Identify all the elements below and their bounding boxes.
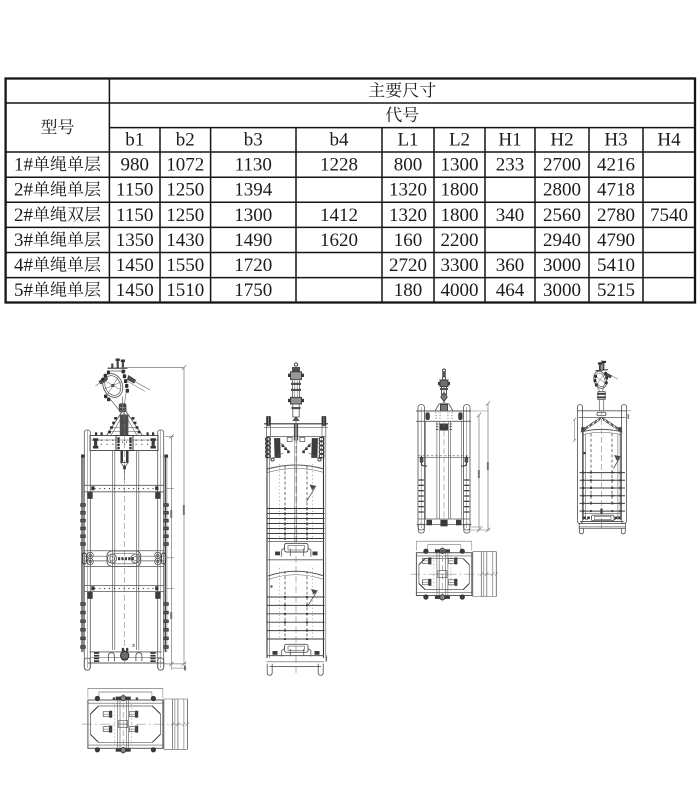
svg-text:L2: L2 [449,130,470,151]
svg-text:7540: 7540 [650,205,688,226]
svg-text:233: 233 [496,155,525,176]
svg-text:1450: 1450 [116,280,154,301]
svg-text:2200: 2200 [441,230,479,251]
svg-text:b1: b1 [125,130,144,151]
svg-text:1300: 1300 [441,155,479,176]
svg-text:1620: 1620 [320,230,358,251]
svg-text:2#: 2# [14,205,34,226]
svg-text:3#: 3# [14,230,34,251]
svg-text:1130: 1130 [235,155,272,176]
svg-text:3300: 3300 [441,255,479,276]
svg-text:5410: 5410 [597,255,635,276]
svg-text:3000: 3000 [543,255,581,276]
svg-text:1394: 1394 [234,180,273,201]
svg-text:1510: 1510 [166,280,204,301]
svg-text:1072: 1072 [166,155,204,176]
svg-text:H3: H3 [604,130,627,151]
svg-text:1720: 1720 [234,255,272,276]
svg-text:H2: H2 [550,130,573,151]
svg-text:1350: 1350 [116,230,154,251]
svg-text:1550: 1550 [166,255,204,276]
svg-text:b4: b4 [330,130,350,151]
svg-text:2700: 2700 [543,155,581,176]
svg-text:980: 980 [120,155,149,176]
svg-text:b3: b3 [244,130,263,151]
svg-text:L1: L1 [397,130,418,151]
svg-text:1320: 1320 [389,180,427,201]
svg-text:2940: 2940 [543,230,581,251]
svg-text:H1: H1 [498,130,521,151]
svg-text:4#: 4# [14,255,34,276]
svg-text:2780: 2780 [597,205,635,226]
svg-text:1300: 1300 [234,205,272,226]
svg-text:4000: 4000 [441,280,479,301]
svg-text:800: 800 [394,155,423,176]
svg-text:1320: 1320 [389,205,427,226]
svg-text:1150: 1150 [116,205,153,226]
svg-text:160: 160 [394,230,423,251]
svg-text:2720: 2720 [389,255,427,276]
svg-text:340: 340 [496,205,525,226]
svg-text:1800: 1800 [441,205,479,226]
svg-text:4718: 4718 [597,180,635,201]
svg-text:1250: 1250 [166,205,204,226]
svg-text:5#: 5# [14,280,34,301]
svg-text:4790: 4790 [597,230,635,251]
svg-text:4216: 4216 [597,155,635,176]
svg-text:360: 360 [496,255,525,276]
svg-text:1#: 1# [14,155,34,176]
svg-text:1490: 1490 [234,230,272,251]
svg-text:1412: 1412 [320,205,358,226]
svg-text:1450: 1450 [116,255,154,276]
svg-text:1430: 1430 [166,230,204,251]
svg-text:464: 464 [496,280,525,301]
svg-text:5215: 5215 [597,280,635,301]
svg-text:H4: H4 [657,130,681,151]
svg-text:2#: 2# [14,180,34,201]
svg-text:1750: 1750 [234,280,272,301]
svg-text:1250: 1250 [166,180,204,201]
svg-text:1150: 1150 [116,180,153,201]
svg-text:1800: 1800 [441,180,479,201]
svg-text:b2: b2 [176,130,195,151]
svg-text:2800: 2800 [543,180,581,201]
svg-text:3000: 3000 [543,280,581,301]
svg-text:2560: 2560 [543,205,581,226]
svg-text:180: 180 [394,280,423,301]
svg-text:1228: 1228 [320,155,358,176]
